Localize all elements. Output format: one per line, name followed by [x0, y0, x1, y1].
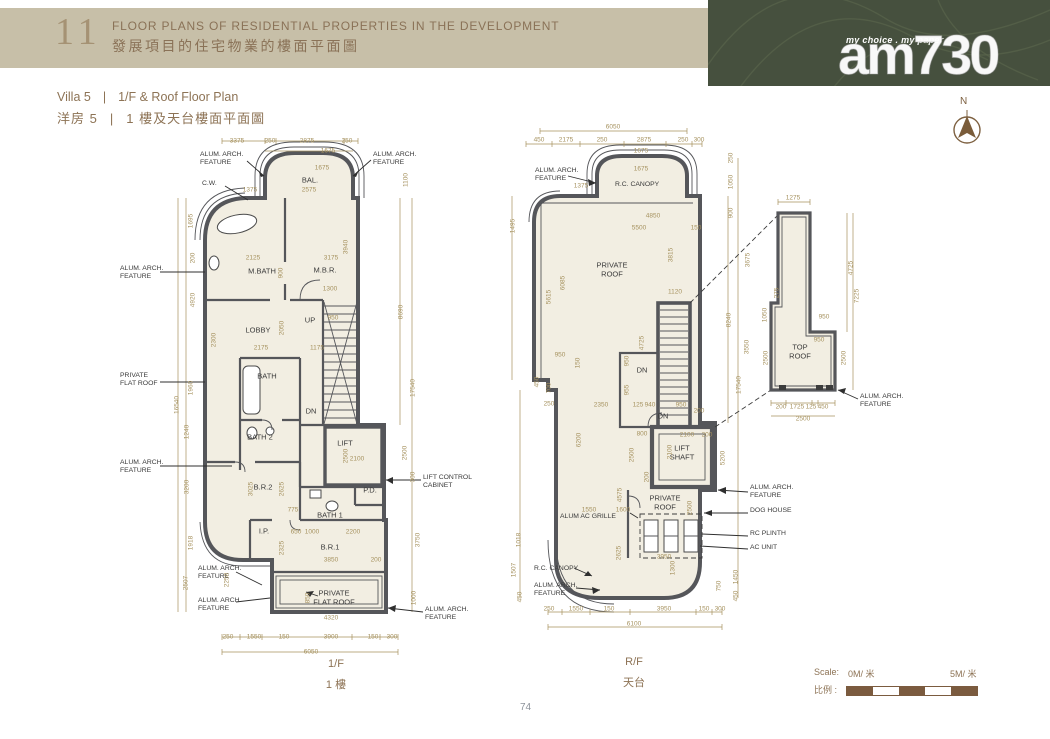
dim-label: 950 — [555, 352, 566, 359]
dim-label: 1240 — [184, 425, 191, 439]
plan-rf-walls — [529, 145, 715, 612]
dim-label: 200 — [371, 557, 382, 564]
room-label-private-flat-roof: PRIVATE FLAT ROOF — [313, 589, 354, 606]
dim-label: 3750 — [415, 533, 422, 547]
room-label-lift: LIFT — [337, 440, 352, 449]
dim-label: 955 — [624, 385, 631, 396]
dim-label: 1550 — [247, 634, 261, 641]
dim-label: 200 — [190, 253, 197, 264]
dim-label: 3025 — [248, 482, 255, 496]
annotation-alum-arch-feature: ALUM. ARCH. FEATURE — [373, 151, 416, 167]
dim-label: 1550 — [569, 606, 583, 613]
dim-label: 4920 — [190, 293, 197, 307]
dim-label: 1050 — [728, 175, 735, 189]
dim-label: 450 — [534, 377, 541, 388]
plan-rf-caption-zh: 天台 — [623, 674, 645, 690]
dim-label: 250 — [223, 634, 234, 641]
annotation-alum-arch-feature: ALUM. ARCH. FEATURE — [535, 167, 578, 183]
dim-label: 4320 — [324, 615, 338, 622]
dim-label: 2500 — [763, 351, 770, 365]
dim-label: 250 — [544, 606, 555, 613]
room-label-bath1: BATH 1 — [317, 512, 343, 521]
dim-label: 17540 — [410, 379, 417, 397]
dim-label: 6200 — [576, 433, 583, 447]
dim-label: 950 — [814, 337, 825, 344]
room-label-private-roof: PRIVATE ROOF — [597, 261, 628, 278]
room-label-br1: B.R.1 — [321, 544, 340, 553]
dim-label: 3550 — [744, 340, 751, 354]
room-label-bal: BAL. — [302, 177, 318, 186]
dim-label: 950 — [676, 402, 687, 409]
dim-label: 5200 — [720, 451, 727, 465]
annotation-private-flat-roof: PRIVATE FLAT ROOF — [120, 372, 158, 388]
dim-label: 1675 — [321, 148, 335, 155]
dim-label: 1120 — [668, 289, 682, 296]
dim-label: 4575 — [617, 488, 624, 502]
dim-label: 200 — [694, 408, 705, 415]
plan-1f-walls — [195, 142, 386, 612]
dim-label: 2175 — [254, 345, 268, 352]
annotation-alum-arch-feature: ALUM. ARCH. FEATURE — [120, 459, 163, 475]
dim-label: 940 — [645, 402, 656, 409]
dim-label: 2100 — [667, 445, 674, 459]
dim-label: 2500 — [841, 351, 848, 365]
dim-label: 6050 — [304, 649, 318, 656]
dim-label: 2350 — [594, 402, 608, 409]
annotation-alum-arch-feature: ALUM. ARCH. FEATURE — [425, 606, 468, 622]
annotation-ac-unit: AC UNIT — [750, 544, 777, 552]
room-label-pd: P.D. — [363, 487, 377, 496]
dim-label: 8240 — [726, 313, 733, 327]
dim-label: 5500 — [632, 225, 646, 232]
dim-label: 125 — [633, 402, 644, 409]
floorplan-canvas — [0, 0, 1050, 739]
dim-label: 1507 — [511, 563, 518, 577]
dim-label: 1175 — [310, 345, 324, 352]
scale-start: 0M/ 米 — [848, 667, 875, 680]
annotation-alum-arch-feature: ALUM. ARCH. FEATURE — [200, 151, 243, 167]
dim-label: 3200 — [184, 480, 191, 494]
dim-label: 650 — [291, 529, 302, 536]
dim-label: 2507 — [183, 576, 190, 590]
room-label-private-roof-small: PRIVATE ROOF — [650, 494, 681, 511]
annotation-rc-canopy: R.C. CANOPY — [534, 565, 578, 573]
dim-label: 900 — [278, 268, 285, 279]
scale-label-zh: 比例 : — [814, 683, 837, 696]
dim-label: 450 — [733, 591, 740, 602]
dim-label: 200 — [776, 404, 787, 411]
annotation-cw: C.W. — [202, 180, 217, 188]
scale-label-en: Scale: — [814, 667, 839, 677]
dim-label: 2100 — [680, 432, 694, 439]
dim-label: 450 — [517, 592, 524, 603]
dim-label: 3850 — [324, 557, 338, 564]
dim-label: 1375 — [243, 187, 257, 194]
annotation-alum-arch-feature: ALUM. ARCH. FEATURE — [198, 597, 241, 613]
dim-label: 1000 — [305, 529, 319, 536]
dim-label: 3950 — [657, 554, 671, 561]
dim-label: 900 — [728, 208, 735, 219]
room-label-mbath: M.BATH — [248, 268, 276, 277]
dim-label: 1960 — [188, 381, 195, 395]
dim-label: 1725 — [790, 404, 804, 411]
room-label-ip: I.P. — [259, 528, 269, 537]
stair-label-dn: DN — [637, 367, 648, 376]
stair-label-up: UP — [305, 317, 315, 326]
dim-label: 4850 — [646, 213, 660, 220]
dim-label: 1675 — [315, 165, 329, 172]
annotation-alum-arch-feature: ALUM. ARCH. FEATURE — [534, 582, 577, 598]
scale-end: 5M/ 米 — [950, 667, 977, 680]
dim-label: 2050 — [279, 321, 286, 335]
dim-label: 6085 — [560, 276, 567, 290]
dim-label: 1018 — [516, 533, 523, 547]
room-label-top-roof: TOP ROOF — [789, 343, 811, 360]
dim-label: 950 — [328, 315, 339, 322]
dim-label: 150 — [604, 606, 615, 613]
annotation-alum-arch-feature: ALUM. ARCH. FEATURE — [120, 265, 163, 281]
stair-label-dn: DN — [306, 408, 317, 417]
dim-label: 150 — [368, 634, 379, 641]
dim-label: 1918 — [188, 536, 195, 550]
dim-label: 950 — [624, 356, 631, 367]
dim-label: 2575 — [302, 187, 316, 194]
dim-label: 2175 — [559, 137, 573, 144]
page-number: 74 — [520, 702, 531, 713]
dim-label: 4725 — [639, 336, 646, 350]
dim-label: 2125 — [246, 255, 260, 262]
dim-label: 250 — [265, 138, 276, 145]
dim-label: 1275 — [786, 195, 800, 202]
dim-label: 2500 — [629, 448, 636, 462]
dim-label: 2300 — [211, 333, 218, 347]
room-label-bath2: BATH 2 — [247, 434, 273, 443]
dim-label: 7225 — [854, 289, 861, 303]
dim-label: 300 — [387, 634, 398, 641]
dim-label: 300 — [715, 606, 726, 613]
dim-label: 1675 — [634, 148, 648, 155]
dim-label: 2500 — [343, 449, 350, 463]
dim-label: 3950 — [657, 606, 671, 613]
dim-label: 950 — [819, 314, 830, 321]
dim-label: 16540 — [174, 396, 181, 414]
dim-label: 750 — [716, 581, 723, 592]
brochure-page: 11 FLOOR PLANS OF RESIDENTIAL PROPERTIES… — [0, 0, 1050, 739]
stair-label-dn: DN — [658, 413, 669, 422]
dim-label: 800 — [637, 431, 648, 438]
dim-label: 8690 — [398, 305, 405, 319]
dim-label: 250 — [342, 138, 353, 145]
dim-label: 3900 — [324, 634, 338, 641]
dim-label: 200 — [644, 472, 651, 483]
dim-label: 17540 — [736, 376, 743, 394]
top-roof-walls — [771, 213, 835, 390]
dim-label: 450 — [818, 404, 829, 411]
annotation-alum-arch-feature: ALUM. ARCH. FEATURE — [860, 393, 903, 409]
dim-label: 150 — [279, 634, 290, 641]
dim-label: 1450 — [733, 570, 740, 584]
dim-label: 6050 — [606, 124, 620, 131]
dim-label: 2875 — [637, 137, 651, 144]
dim-label: 775 — [288, 507, 299, 514]
dim-label: 1550 — [582, 507, 596, 514]
dim-label: 3675 — [745, 253, 752, 267]
dim-label: 1050 — [762, 308, 769, 322]
annotation-alum-arch-feature: ALUM. ARCH. FEATURE — [198, 565, 241, 581]
dim-label: 1495 — [510, 219, 517, 233]
scale-bar — [846, 686, 978, 696]
dim-label: 2500 — [687, 501, 694, 515]
dim-label: 1000 — [411, 591, 418, 605]
dim-label: 125 — [806, 404, 817, 411]
dim-label: 700 — [546, 383, 553, 394]
dim-label: 4725 — [848, 261, 855, 275]
dim-label: 150 — [575, 358, 582, 369]
annotation-lift-control-cabinet: LIFT CONTROL CABINET — [423, 474, 472, 490]
dim-label: 250 — [544, 401, 555, 408]
dim-label: 2325 — [279, 541, 286, 555]
annotation-dog-house: DOG HOUSE — [750, 507, 792, 515]
dim-label: 1375 — [574, 183, 588, 190]
plan-rf-caption-en: R/F — [625, 656, 643, 668]
dim-label: 2500 — [796, 416, 810, 423]
dim-label: 2200 — [346, 529, 360, 536]
dim-label: 2625 — [616, 546, 623, 560]
room-label-lobby: LOBBY — [245, 327, 270, 336]
dim-label: 250 — [597, 137, 608, 144]
dim-label: 300 — [410, 472, 417, 483]
room-label-br2: B.R.2 — [254, 484, 273, 493]
room-label-mbr: M.B.R. — [314, 267, 337, 276]
dim-label: 3175 — [324, 255, 338, 262]
dim-label: 2625 — [279, 482, 286, 496]
dim-label: 1300 — [670, 561, 677, 575]
dim-label: 1695 — [188, 214, 195, 228]
dim-label: 150 — [691, 225, 702, 232]
dim-label: 275 — [774, 288, 781, 299]
dim-label: 850 — [305, 593, 312, 604]
dim-label: 2100 — [350, 456, 364, 463]
annotation-alum-arch-feature: ALUM. ARCH. FEATURE — [750, 484, 793, 500]
dim-label: 3375 — [230, 138, 244, 145]
dim-label: 5615 — [546, 290, 553, 304]
top-roof-leaders — [838, 388, 858, 399]
dim-label: 250 — [728, 153, 735, 164]
dim-label: 200 — [702, 432, 713, 439]
dim-label: 1100 — [403, 173, 410, 187]
dim-label: 1675 — [634, 166, 648, 173]
dim-label: 2875 — [300, 138, 314, 145]
room-label-bath: BATH — [257, 373, 276, 382]
dim-label: 250 — [678, 137, 689, 144]
dim-label: 450 — [534, 137, 545, 144]
plan-1f-caption-zh: 1 樓 — [326, 676, 346, 692]
dim-label: 3815 — [668, 248, 675, 262]
dim-label: 150 — [699, 606, 710, 613]
annotation-alum-ac-grille: ALUM AC GRILLE — [560, 513, 616, 521]
dim-label: 2500 — [402, 446, 409, 460]
dim-label: 2258 — [224, 573, 231, 587]
dim-label: 6100 — [627, 621, 641, 628]
plan-1f-caption-en: 1/F — [328, 658, 344, 670]
annotation-rc-canopy: R.C. CANOPY — [615, 181, 659, 189]
dim-label: 3940 — [343, 240, 350, 254]
dim-label: 300 — [694, 137, 705, 144]
annotation-rc-plinth: RC PLINTH — [750, 530, 786, 538]
dim-label: 1600 — [616, 507, 630, 514]
dim-label: 1300 — [323, 286, 337, 293]
